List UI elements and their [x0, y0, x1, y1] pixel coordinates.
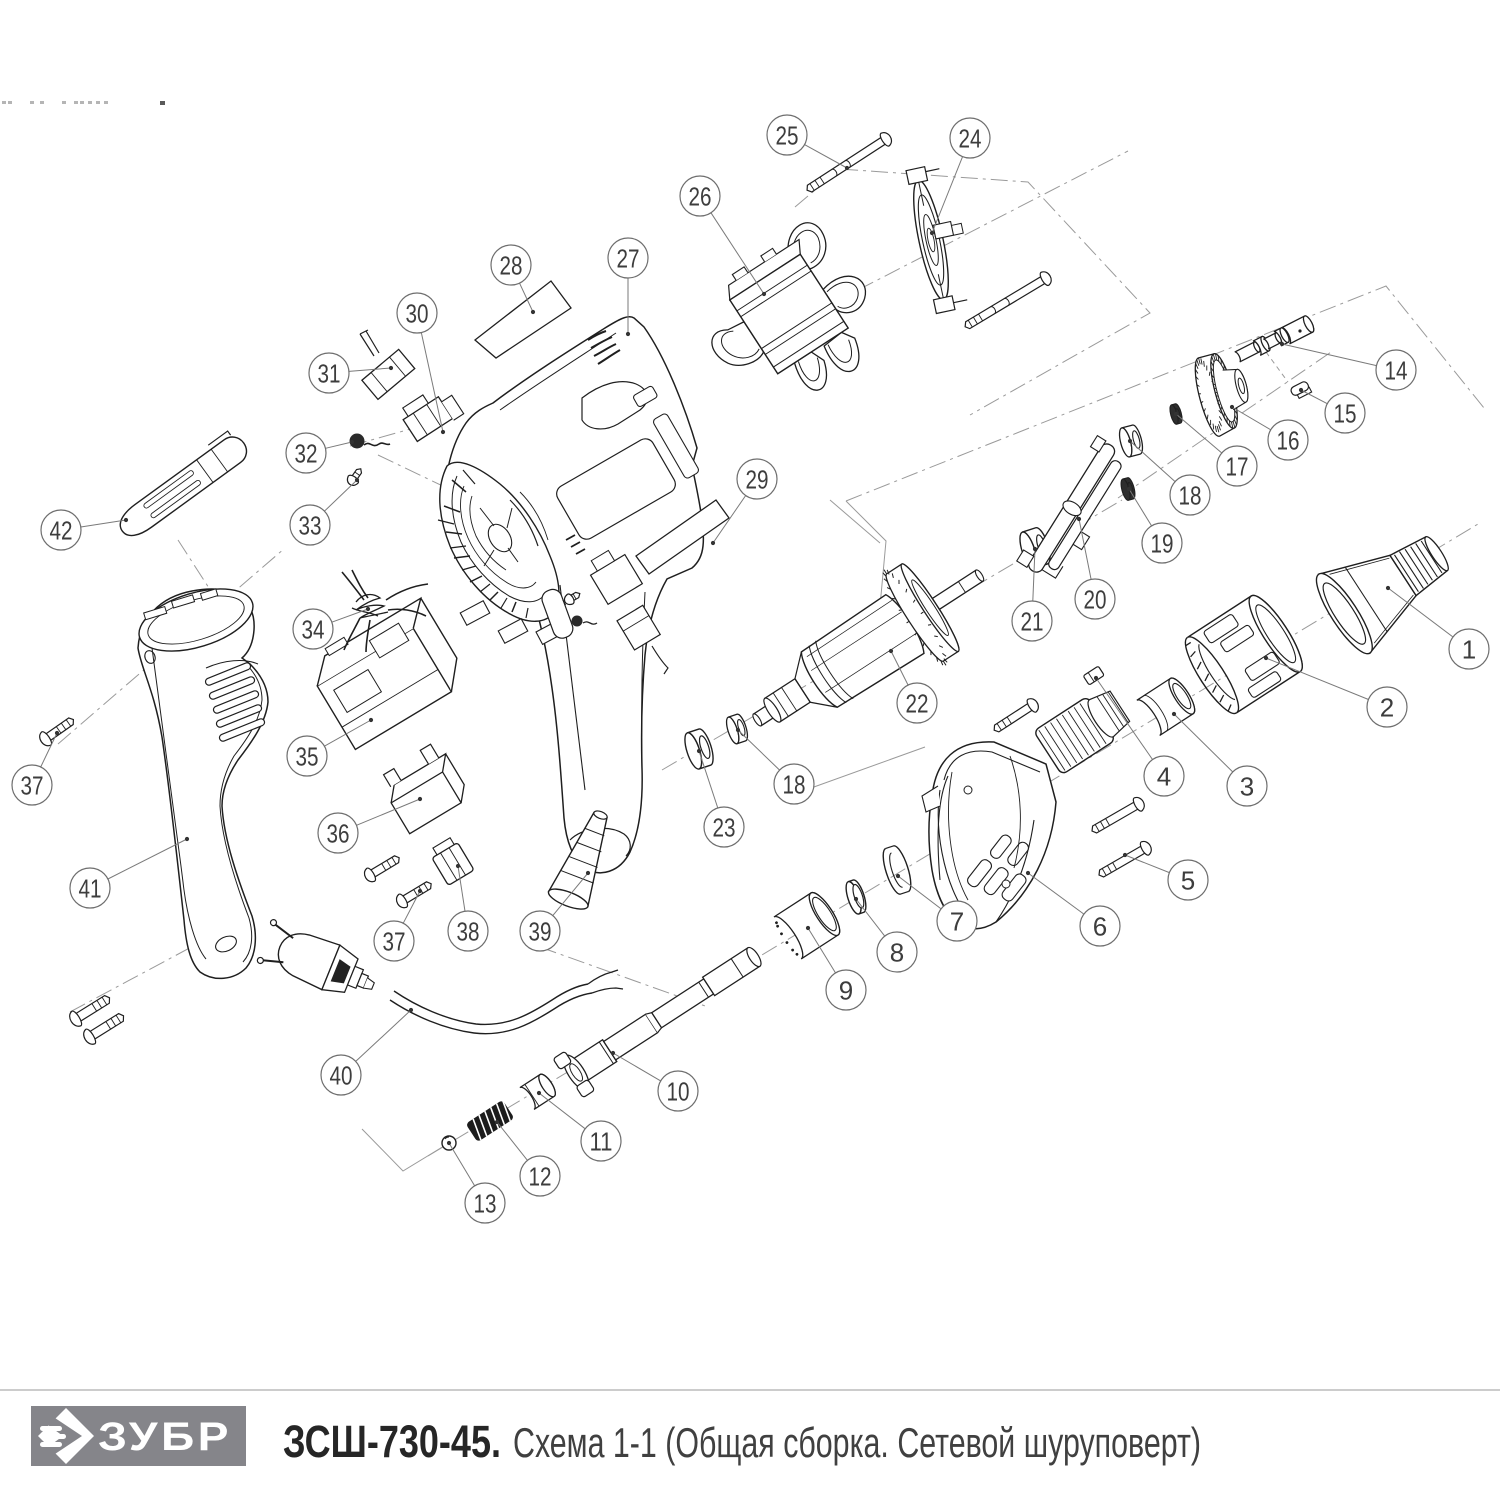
svg-text:16: 16: [1277, 426, 1300, 456]
svg-text:7: 7: [950, 907, 964, 937]
svg-text:40: 40: [330, 1061, 353, 1091]
svg-text:10: 10: [667, 1077, 690, 1107]
svg-text:8: 8: [890, 938, 904, 968]
svg-text:18: 18: [783, 770, 806, 800]
svg-text:28: 28: [500, 251, 523, 281]
svg-text:13: 13: [474, 1189, 497, 1219]
svg-text:25: 25: [776, 121, 799, 151]
svg-text:5: 5: [1181, 866, 1195, 896]
svg-text:21: 21: [1021, 607, 1044, 637]
svg-text:9: 9: [839, 976, 853, 1006]
svg-text:35: 35: [296, 742, 319, 772]
svg-text:29: 29: [746, 465, 769, 495]
svg-text:Схема 1-1 (Общая сборка. Сетев: Схема 1-1 (Общая сборка. Сетевой шурупов…: [513, 1419, 1201, 1466]
svg-text:37: 37: [383, 927, 406, 957]
svg-text:26: 26: [689, 182, 712, 212]
svg-text:38: 38: [457, 917, 480, 947]
svg-text:ЗУБР: ЗУБР: [98, 1415, 232, 1459]
svg-text:11: 11: [590, 1127, 613, 1157]
svg-text:1: 1: [1462, 635, 1476, 665]
svg-text:42: 42: [50, 516, 73, 546]
svg-text:6: 6: [1093, 912, 1107, 942]
svg-text:3: 3: [1240, 772, 1254, 802]
svg-text:2: 2: [1380, 693, 1394, 723]
svg-text:41: 41: [79, 874, 102, 904]
svg-text:33: 33: [299, 511, 322, 541]
svg-text:23: 23: [713, 813, 736, 843]
svg-text:20: 20: [1084, 585, 1107, 615]
svg-text:4: 4: [1157, 762, 1171, 792]
svg-text:30: 30: [406, 299, 429, 329]
svg-text:15: 15: [1334, 399, 1357, 429]
svg-text:19: 19: [1151, 529, 1174, 559]
svg-text:ЗСШ-730-45.: ЗСШ-730-45.: [283, 1416, 501, 1467]
svg-text:37: 37: [21, 771, 44, 801]
svg-text:12: 12: [529, 1162, 552, 1192]
svg-text:24: 24: [959, 124, 982, 154]
svg-text:27: 27: [617, 244, 640, 274]
svg-text:32: 32: [295, 439, 318, 469]
svg-text:14: 14: [1385, 356, 1408, 386]
svg-text:22: 22: [906, 689, 929, 719]
svg-text:31: 31: [318, 359, 341, 389]
svg-text:34: 34: [302, 615, 325, 645]
svg-text:36: 36: [327, 819, 350, 849]
svg-text:39: 39: [529, 917, 552, 947]
svg-text:17: 17: [1226, 452, 1249, 482]
svg-text:18: 18: [1179, 481, 1202, 511]
